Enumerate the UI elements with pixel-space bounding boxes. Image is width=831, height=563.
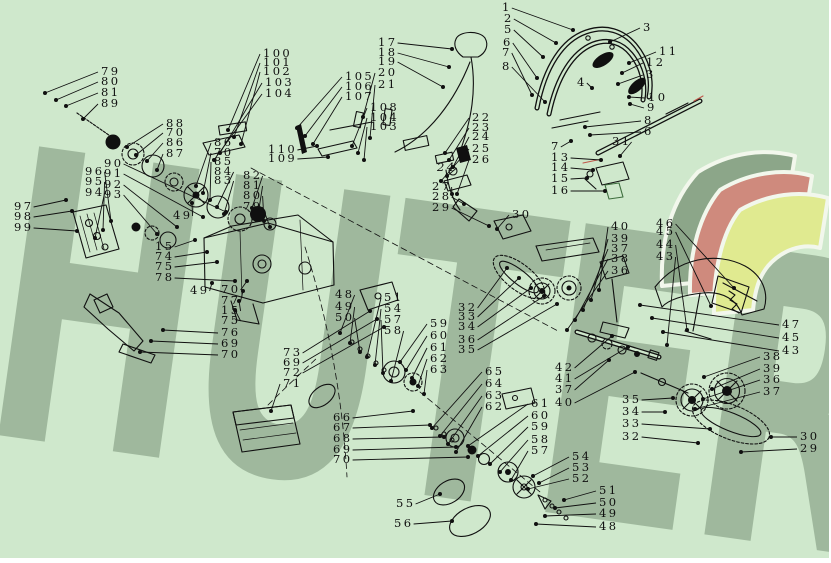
leader-endpoint [109, 219, 113, 223]
leader-endpoint [626, 345, 630, 349]
leader-endpoint [303, 134, 307, 138]
leader-endpoint [210, 281, 214, 285]
leader-endpoint [338, 331, 342, 335]
leader-endpoint [466, 444, 470, 448]
part-number-label: 78 [155, 270, 174, 284]
part-number-label: 37 [555, 382, 574, 396]
leader-endpoint [348, 341, 352, 345]
leader-line [514, 30, 543, 57]
part-number-label: 33 [622, 416, 641, 430]
leader-endpoint [311, 142, 315, 146]
leader-endpoint [498, 470, 502, 474]
part-number-label: 45 [782, 330, 801, 344]
part-number-label: 59 [531, 419, 550, 433]
leader-endpoint [193, 238, 197, 242]
part-number-label: 56 [394, 516, 413, 530]
part-number-label: 45 [656, 224, 675, 238]
leader-endpoint [495, 227, 499, 231]
part-number-label: 35 [458, 342, 477, 356]
leader-endpoint [245, 279, 249, 283]
leader-endpoint [562, 498, 566, 502]
leader-endpoint [565, 328, 569, 332]
leader-endpoint [215, 205, 219, 209]
leader-endpoint [81, 117, 85, 121]
leader-endpoint [685, 328, 689, 332]
part-number-label: 57 [531, 443, 550, 457]
page-edge-bottom [0, 558, 831, 563]
leader-endpoint [628, 102, 632, 106]
leader-endpoint [410, 376, 414, 380]
leader-endpoint [633, 370, 637, 374]
leader-endpoint [702, 375, 706, 379]
leader-endpoint [138, 350, 142, 354]
part-number-label: 94 [85, 185, 104, 199]
leader-endpoint [445, 174, 449, 178]
part-number-label: 9 [647, 100, 657, 114]
leader-endpoint [64, 104, 68, 108]
leader-endpoint [241, 289, 245, 293]
leader-endpoint [64, 198, 68, 202]
part-number-label: 8 [502, 59, 512, 73]
part-number-label: 49 [190, 283, 209, 297]
leader-endpoint [732, 286, 736, 290]
leader-endpoint [43, 91, 47, 95]
part-number-label: 70 [221, 347, 240, 361]
leader-line [512, 53, 532, 95]
part-number-label: 50 [335, 310, 354, 324]
leader-endpoint [447, 65, 451, 69]
part-number-label: 99 [14, 220, 33, 234]
leader-endpoint [446, 442, 450, 446]
part-number-label: 63 [430, 362, 449, 376]
leader-endpoint [693, 407, 697, 411]
leader-endpoint [541, 55, 545, 59]
part-number-label: 48 [599, 519, 618, 533]
leader-line [398, 62, 443, 87]
leader-endpoint [205, 250, 209, 254]
leader-endpoint [607, 358, 611, 362]
leader-line [630, 104, 644, 108]
leader-endpoint [161, 328, 165, 332]
leader-endpoint [428, 423, 432, 427]
leader-endpoint [696, 441, 700, 445]
leader-endpoint [543, 514, 547, 518]
part-number-label: 34 [458, 319, 477, 333]
leader-endpoint [208, 198, 212, 202]
leader-endpoint [373, 363, 377, 367]
leader-endpoint [411, 409, 415, 413]
leader-endpoint [529, 286, 533, 290]
part-number-label: 21 [378, 77, 397, 91]
leader-endpoint [466, 455, 470, 459]
part-number-label: 43 [782, 343, 801, 357]
leader-endpoint [553, 506, 557, 510]
leader-endpoint [603, 189, 607, 193]
part-number-label: 29 [800, 441, 819, 455]
part-number-label: 30 [512, 207, 531, 221]
leader-endpoint [326, 155, 330, 159]
leader-endpoint [665, 343, 669, 347]
leader-endpoint [201, 191, 205, 195]
part-number-label: 83 [214, 173, 233, 187]
part-number-label: 29 [432, 200, 451, 214]
leader-endpoint [590, 86, 594, 90]
leader-endpoint [701, 397, 705, 401]
leader-endpoint [616, 82, 620, 86]
part-number-label: 36 [611, 263, 630, 277]
part-number-label: 3 [646, 67, 656, 81]
leader-endpoint [134, 153, 138, 157]
leader-endpoint [671, 396, 675, 400]
leader-endpoint [710, 387, 714, 391]
leader-endpoint [627, 95, 631, 99]
leader-endpoint [155, 168, 159, 172]
leader-endpoint [101, 228, 105, 232]
leader-endpoint [769, 435, 773, 439]
leader-line [514, 19, 556, 43]
leader-endpoint [54, 98, 58, 102]
part-number-label: 55 [396, 496, 415, 510]
leader-endpoint [526, 487, 530, 491]
part-number-label: 52 [572, 471, 591, 485]
leader-endpoint [554, 41, 558, 45]
leader-endpoint [583, 125, 587, 129]
leader-endpoint [232, 135, 236, 139]
leader-endpoint [262, 219, 266, 223]
leader-endpoint [362, 158, 366, 162]
leader-endpoint [358, 350, 362, 354]
leader-endpoint [269, 409, 273, 413]
part-number-label: 6 [644, 124, 654, 138]
part-number-label: 70 [333, 452, 352, 466]
part-number-label: 37 [763, 384, 782, 398]
leader-endpoint [627, 61, 631, 65]
leader-endpoint [589, 298, 593, 302]
leader-endpoint [597, 288, 601, 292]
leader-endpoint [268, 225, 272, 229]
leader-endpoint [530, 93, 534, 97]
leader-endpoint [454, 445, 458, 449]
part-number-label: 58 [384, 323, 403, 337]
part-number-label: 87 [166, 146, 185, 160]
leader-endpoint [175, 225, 179, 229]
leader-endpoint [441, 85, 445, 89]
leader-endpoint [442, 435, 446, 439]
leader-endpoint [295, 126, 299, 130]
leader-endpoint [709, 304, 713, 308]
leader-endpoint [398, 360, 402, 364]
part-number-label: 104 [265, 86, 294, 100]
leader-endpoint [416, 384, 420, 388]
leader-endpoint [361, 115, 365, 119]
part-number-label: 49 [173, 208, 192, 222]
leader-endpoint [599, 158, 603, 162]
leader-endpoint [365, 355, 369, 359]
leader-endpoint [125, 145, 129, 149]
part-number-label: 62 [485, 399, 504, 413]
part-number-label: 26 [472, 152, 491, 166]
leader-endpoint [608, 40, 612, 44]
part-number-label: 16 [551, 183, 570, 197]
leader-endpoint [487, 224, 491, 228]
leader-endpoint [454, 450, 458, 454]
part-number-label: 31 [612, 134, 631, 148]
leader-endpoint [488, 462, 492, 466]
leader-endpoint [438, 492, 442, 496]
leader-line [512, 8, 573, 30]
leader-endpoint [315, 144, 319, 148]
leader-endpoint [618, 154, 622, 158]
part-number-label: 5 [504, 22, 514, 36]
leader-endpoint [661, 330, 665, 334]
leader-endpoint [381, 371, 385, 375]
leader-endpoint [462, 202, 466, 206]
leader-line [398, 43, 452, 49]
leader-endpoint [476, 454, 480, 458]
part-number-label: 4 [577, 75, 587, 89]
part-number-label: 49 [599, 506, 618, 520]
part-number-label: 24 [436, 160, 456, 174]
leader-endpoint [534, 522, 538, 526]
part-number-label: 47 [782, 317, 801, 331]
leader-endpoint [531, 474, 535, 478]
leader-endpoint [215, 260, 219, 264]
leader-endpoint [212, 158, 216, 162]
leader-line [512, 67, 545, 102]
leader-endpoint [368, 136, 372, 140]
leader-endpoint [585, 176, 589, 180]
leader-endpoint [368, 309, 372, 313]
part-number-label: 89 [101, 96, 120, 110]
part-number-label: 7 [502, 45, 512, 59]
leader-endpoint [591, 168, 595, 172]
leader-endpoint [537, 481, 541, 485]
leader-endpoint [663, 410, 667, 414]
leader-endpoint [155, 232, 159, 236]
part-number-label: 79 [243, 199, 262, 213]
leader-endpoint [350, 144, 354, 148]
leader-endpoint [569, 139, 573, 143]
leader-line [585, 121, 641, 127]
part-number-label: 3 [643, 20, 653, 34]
leader-endpoint [194, 184, 198, 188]
leader-endpoint [356, 151, 360, 155]
leader-endpoint [650, 316, 654, 320]
part-number-label: 109 [268, 151, 297, 165]
leader-endpoint [450, 47, 454, 51]
leader-endpoint [450, 519, 454, 523]
leader-endpoint [256, 213, 260, 217]
part-number-label: 103 [370, 119, 399, 133]
leader-endpoint [505, 266, 509, 270]
leader-line [398, 53, 449, 67]
leader-endpoint [542, 294, 546, 298]
leader-endpoint [389, 379, 393, 383]
part-number-label: 32 [622, 429, 641, 443]
leader-endpoint [509, 478, 513, 482]
leader-endpoint [708, 427, 712, 431]
leader-endpoint [610, 334, 614, 338]
leader-endpoint [149, 339, 153, 343]
part-number-label: 43 [656, 249, 675, 263]
leader-endpoint [222, 212, 226, 216]
leader-endpoint [75, 229, 79, 233]
exploded-parts-diagram: HUTER [0, 0, 831, 563]
leader-endpoint [535, 76, 539, 80]
leader-endpoint [226, 128, 230, 132]
leader-endpoint [443, 151, 447, 155]
leader-endpoint [404, 368, 408, 372]
leader-endpoint [638, 303, 642, 307]
leader-endpoint [422, 392, 426, 396]
leader-endpoint [93, 236, 97, 240]
parts-diagram-page: { "watermark": { "text": "HUTER" }, "col… [0, 0, 831, 563]
part-number-label: 71 [283, 376, 302, 390]
leader-endpoint [455, 192, 459, 196]
leader-endpoint [543, 100, 547, 104]
leader-endpoint [588, 133, 592, 137]
leader-endpoint [201, 215, 205, 219]
leader-endpoint [571, 28, 575, 32]
leader-endpoint [620, 71, 624, 75]
leader-endpoint [739, 450, 743, 454]
leader-endpoint [239, 142, 243, 146]
leader-endpoint [517, 276, 521, 280]
leader-endpoint [233, 308, 237, 312]
leader-endpoint [70, 209, 74, 213]
part-number-label: 40 [555, 395, 574, 409]
leader-endpoint [555, 302, 559, 306]
leader-endpoint [145, 159, 149, 163]
leader-endpoint [190, 201, 194, 205]
